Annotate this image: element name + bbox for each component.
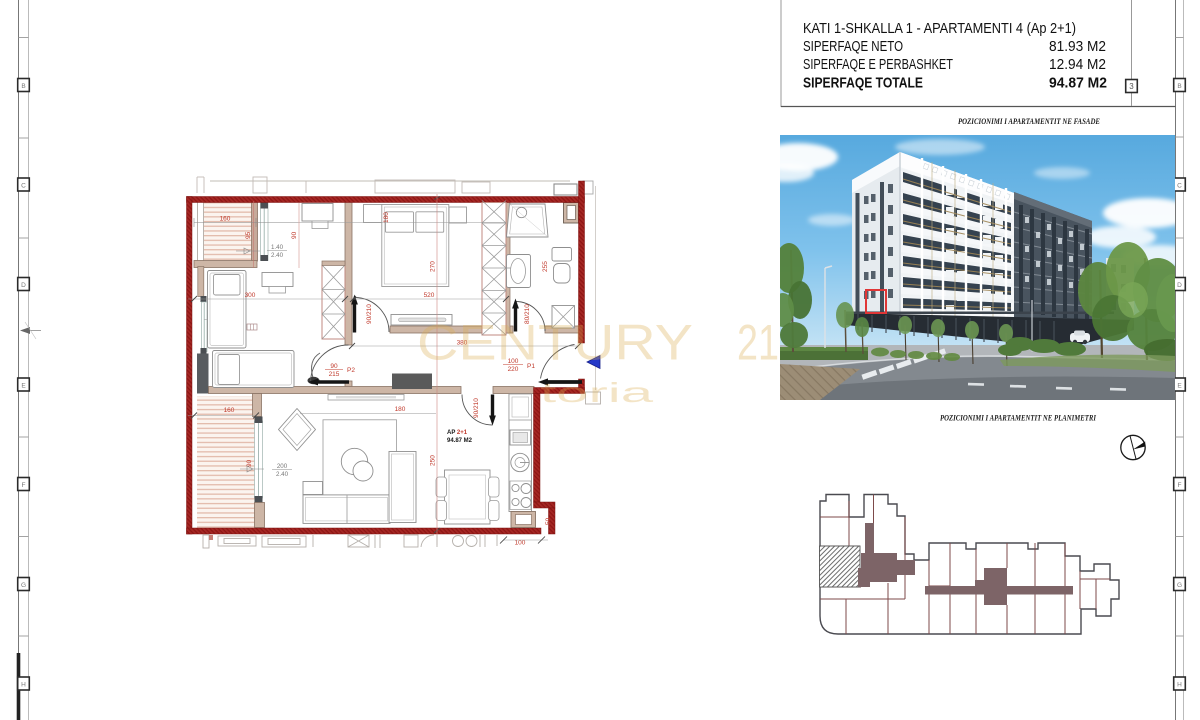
- svg-text:SIPERFAQE TOTALE: SIPERFAQE TOTALE: [803, 75, 923, 92]
- svg-text:81.93 M2: 81.93 M2: [1049, 38, 1106, 55]
- svg-text:100: 100: [515, 540, 526, 547]
- svg-text:E: E: [21, 383, 26, 390]
- svg-text:2.40: 2.40: [276, 471, 289, 478]
- svg-text:POZICIONIMI I APARTAMENTIT NE: POZICIONIMI I APARTAMENTIT NE FASADE: [958, 117, 1100, 126]
- svg-text:E: E: [1177, 383, 1182, 390]
- svg-text:AP 2+1: AP 2+1: [447, 430, 468, 436]
- svg-text:215: 215: [329, 371, 340, 378]
- svg-text:270: 270: [430, 261, 437, 272]
- svg-text:21: 21: [737, 315, 779, 371]
- svg-text:200: 200: [277, 463, 288, 470]
- svg-text:D: D: [1177, 282, 1182, 289]
- svg-text:160: 160: [224, 407, 235, 414]
- svg-text:F: F: [22, 482, 26, 489]
- svg-text:90: 90: [330, 363, 338, 370]
- svg-text:P2: P2: [347, 367, 355, 374]
- svg-text:2.40: 2.40: [271, 252, 284, 259]
- svg-text:SIPERFAQE NETO: SIPERFAQE NETO: [803, 38, 903, 55]
- svg-text:C: C: [21, 183, 26, 190]
- svg-text:B: B: [21, 83, 25, 90]
- svg-text:50: 50: [545, 517, 552, 525]
- svg-text:90: 90: [291, 231, 298, 239]
- svg-text:3: 3: [1129, 82, 1134, 91]
- svg-text:250: 250: [430, 455, 437, 466]
- svg-text:180: 180: [383, 212, 390, 223]
- svg-text:94.87 M2: 94.87 M2: [447, 438, 473, 444]
- svg-text:CENTURY: CENTURY: [417, 315, 693, 371]
- svg-text:1.40: 1.40: [271, 244, 284, 251]
- svg-text:95: 95: [245, 231, 252, 239]
- svg-text:180: 180: [395, 406, 406, 413]
- svg-text:F: F: [1178, 482, 1182, 489]
- svg-text:94.87 M2: 94.87 M2: [1049, 75, 1107, 92]
- svg-text:H: H: [1177, 682, 1182, 689]
- svg-text:B: B: [1177, 83, 1181, 90]
- svg-text:12.94 M2: 12.94 M2: [1049, 56, 1106, 73]
- svg-text:POZICIONIMI I APARTAMENTIT NE: POZICIONIMI I APARTAMENTIT NE PLANIMETRI: [940, 414, 1097, 423]
- svg-text:KATI 1-SHKALLA 1 - APARTAMENTI: KATI 1-SHKALLA 1 - APARTAMENTI 4 (Ap 2+1…: [803, 20, 1076, 37]
- svg-text:H: H: [21, 682, 26, 689]
- svg-text:300: 300: [245, 292, 256, 299]
- svg-text:90/210: 90/210: [473, 398, 480, 418]
- svg-text:160: 160: [220, 216, 231, 223]
- svg-text:C: C: [1177, 183, 1182, 190]
- svg-text:D: D: [21, 282, 26, 289]
- svg-text:520: 520: [424, 292, 435, 299]
- svg-text:SIPERFAQE E PERBASHKET: SIPERFAQE E PERBASHKET: [803, 56, 953, 73]
- svg-text:90/210: 90/210: [366, 304, 373, 324]
- svg-text:G: G: [21, 582, 26, 589]
- svg-text:toria: toria: [540, 377, 654, 408]
- svg-text:255: 255: [542, 261, 549, 272]
- svg-text:G: G: [1177, 582, 1182, 589]
